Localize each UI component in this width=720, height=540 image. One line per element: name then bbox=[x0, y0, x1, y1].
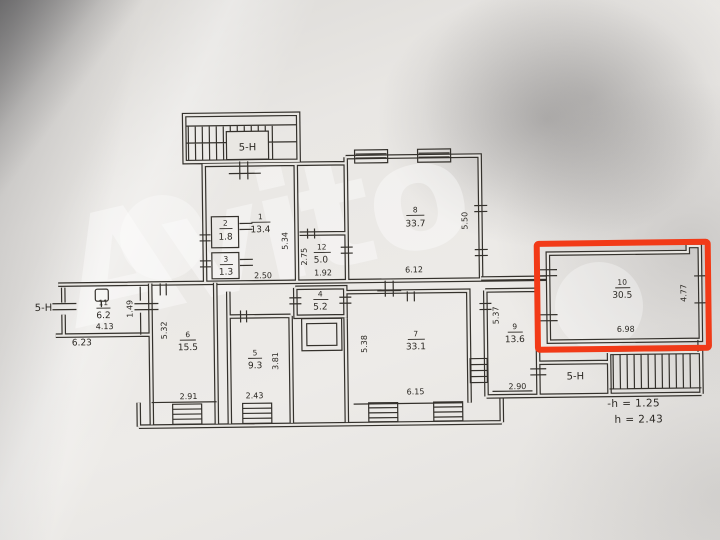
room-7-number: 7 bbox=[413, 329, 418, 338]
dim-4-13: 4.13 bbox=[96, 322, 114, 331]
room-11-number: 11 bbox=[99, 298, 109, 307]
dim-6-12: 6.12 bbox=[405, 265, 423, 274]
entry-left-label: 5-Н bbox=[35, 303, 53, 314]
legend-line-1: -h = 1.25 bbox=[607, 397, 660, 410]
dim-2-91: 2.91 bbox=[180, 392, 198, 401]
dim-5-50: 5.50 bbox=[460, 212, 469, 230]
dim-6-15: 6.15 bbox=[407, 387, 425, 396]
room-10-area: 30.5 bbox=[612, 291, 632, 301]
dim-1-92: 1.92 bbox=[314, 268, 332, 277]
room-4-number: 4 bbox=[318, 289, 323, 298]
dim-2-75: 2.75 bbox=[300, 248, 309, 266]
room-8-number: 8 bbox=[413, 205, 418, 214]
dim-5-32: 5.32 bbox=[160, 321, 169, 339]
dim-2-90: 2.90 bbox=[508, 382, 526, 391]
dim-2-43: 2.43 bbox=[246, 391, 264, 400]
room-3-area: 1.3 bbox=[219, 268, 233, 278]
dim-5-34: 5.34 bbox=[281, 232, 290, 250]
dim-5-38: 5.38 bbox=[360, 335, 369, 353]
room-4-area: 5.2 bbox=[313, 302, 327, 312]
room-2-number: 2 bbox=[223, 219, 228, 228]
room-12-area: 5.0 bbox=[314, 255, 329, 265]
dim-6-23: 6.23 bbox=[72, 338, 92, 348]
room-1-number: 1 bbox=[258, 212, 263, 221]
room-1-area: 13.4 bbox=[250, 225, 270, 235]
room-10-number: 10 bbox=[617, 278, 627, 287]
room-12-number: 12 bbox=[317, 242, 327, 251]
stairs-bottom bbox=[609, 354, 701, 389]
stair-bottom-label: 5-Н bbox=[567, 371, 585, 382]
room-11-area: 6.2 bbox=[96, 311, 110, 321]
dim-2-50: 2.50 bbox=[254, 271, 272, 280]
room-6-area: 15.5 bbox=[178, 343, 198, 353]
stair-top-label: 5-Н bbox=[239, 142, 257, 153]
dim-1-49: 1.49 bbox=[125, 300, 134, 318]
legend-line-2: h = 2.43 bbox=[614, 413, 663, 426]
room-2-area: 1.8 bbox=[218, 233, 233, 243]
room-5-number: 5 bbox=[253, 348, 258, 357]
dim-4-77: 4.77 bbox=[679, 284, 688, 302]
room-3-number: 3 bbox=[223, 255, 228, 264]
floor-plan-drawing: 1 13.4 2 1.8 3 1.3 12 5.0 8 33.7 4 5.2 1… bbox=[0, 0, 720, 540]
room-7-area: 33.1 bbox=[406, 342, 426, 352]
room-5-area: 9.3 bbox=[248, 361, 262, 371]
room-9-area: 13.6 bbox=[505, 335, 525, 345]
floorplan-photo: Avito bbox=[0, 0, 720, 540]
room-8-area: 33.7 bbox=[405, 219, 425, 229]
dimensions: 5.34 2.50 2.75 1.92 5.50 6.12 1.49 4.13 … bbox=[70, 209, 689, 402]
dim-5-37: 5.37 bbox=[491, 306, 500, 324]
walls bbox=[53, 109, 702, 428]
room-9-number: 9 bbox=[512, 322, 517, 331]
dim-3-81: 3.81 bbox=[271, 352, 280, 370]
room-6-number: 6 bbox=[185, 330, 190, 339]
dim-6-98: 6.98 bbox=[617, 325, 635, 334]
